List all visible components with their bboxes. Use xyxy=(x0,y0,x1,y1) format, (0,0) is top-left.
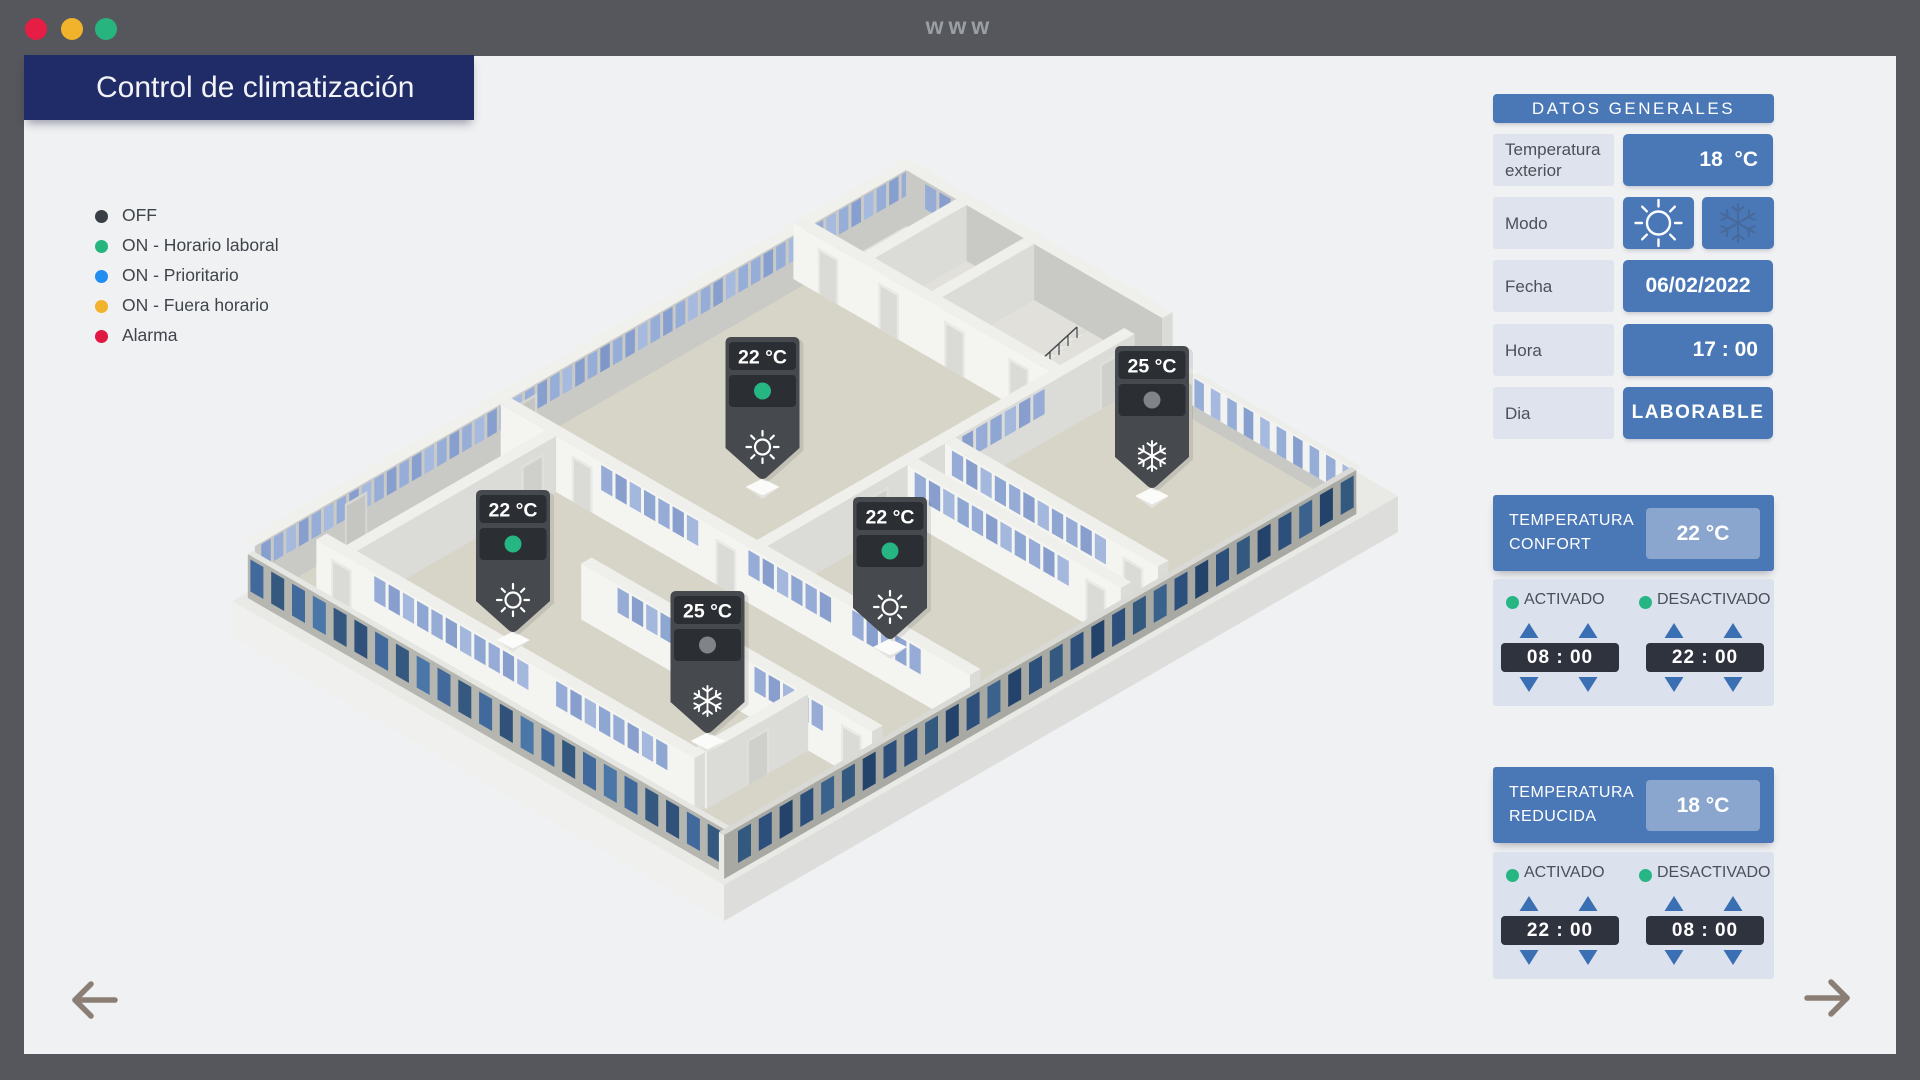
svg-text:25 °C: 25 °C xyxy=(1128,356,1177,378)
svg-text:25 °C: 25 °C xyxy=(683,601,732,623)
svg-text:22 °C: 22 °C xyxy=(866,507,915,529)
svg-text:22 °C: 22 °C xyxy=(738,347,787,369)
svg-text:22 °C: 22 °C xyxy=(489,500,538,522)
